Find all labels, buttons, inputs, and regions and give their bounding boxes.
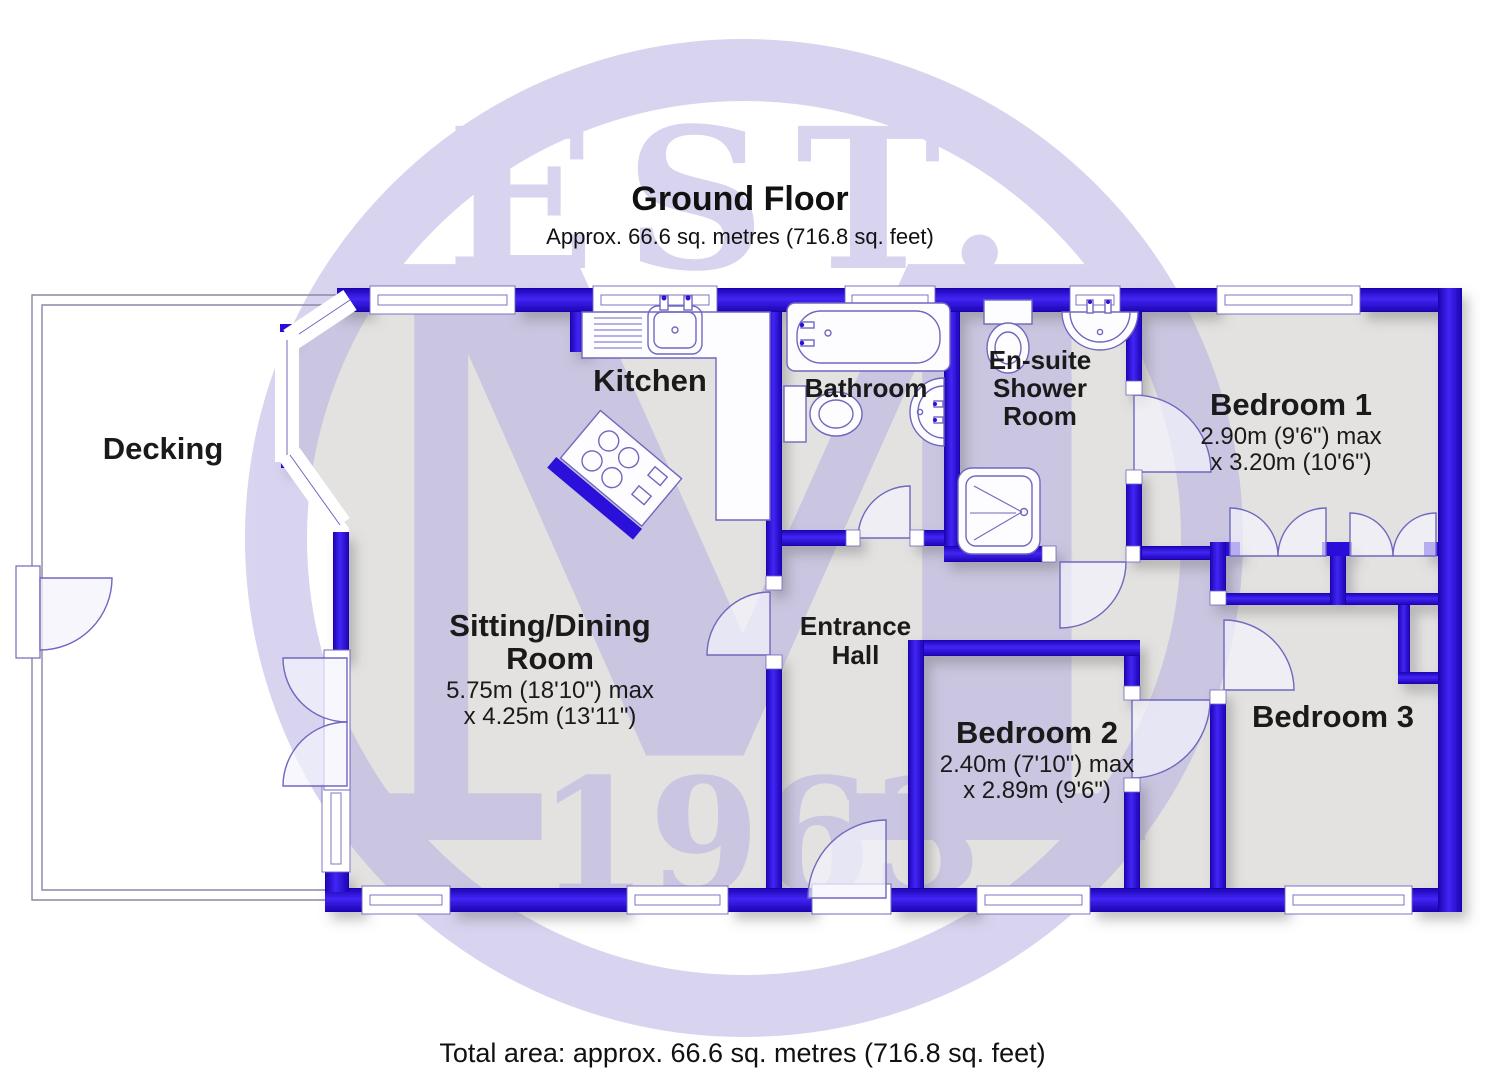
page-title: Ground Floor — [390, 180, 1090, 219]
room-label-sitting: Sitting/Dining Room 5.75m (18'10") max x… — [405, 610, 695, 731]
room-label-bedroom3: Bedroom 3 — [1228, 700, 1438, 734]
window-sitting-bottom2 — [627, 886, 728, 914]
room-label-bathroom: Bathroom — [781, 374, 951, 403]
room-label-ensuite: En-suite Shower Room — [950, 346, 1130, 430]
window-sitting-top — [370, 286, 515, 314]
room-label-kitchen: Kitchen — [555, 364, 745, 398]
window-bedroom1-top — [1217, 286, 1360, 314]
total-area-text: Total area: approx. 66.6 sq. metres (716… — [0, 1038, 1485, 1069]
window-bedroom3-bottom — [1285, 886, 1412, 914]
room-label-bedroom2: Bedroom 2 2.40m (7'10") max x 2.89m (9'6… — [907, 716, 1167, 805]
floor-plan-svg: EST. M 1963 — [0, 0, 1485, 1080]
window-sitting-bottom1 — [362, 886, 450, 914]
bathtub-icon — [787, 303, 950, 371]
window-bedroom2-bottom — [977, 886, 1090, 914]
room-label-decking: Decking — [63, 432, 263, 466]
page-subtitle: Approx. 66.6 sq. metres (716.8 sq. feet) — [390, 224, 1090, 250]
window-ensuite-top — [1070, 286, 1120, 314]
room-label-hall: Entrance Hall — [778, 612, 933, 669]
title-block: Ground Floor Approx. 66.6 sq. metres (71… — [390, 180, 1090, 250]
shower-icon — [958, 468, 1040, 554]
room-label-bedroom1: Bedroom 1 2.90m (9'6") max x 3.20m (10'6… — [1158, 388, 1424, 477]
window-kitchen-top — [593, 286, 717, 314]
window-sitting-left — [322, 785, 350, 872]
